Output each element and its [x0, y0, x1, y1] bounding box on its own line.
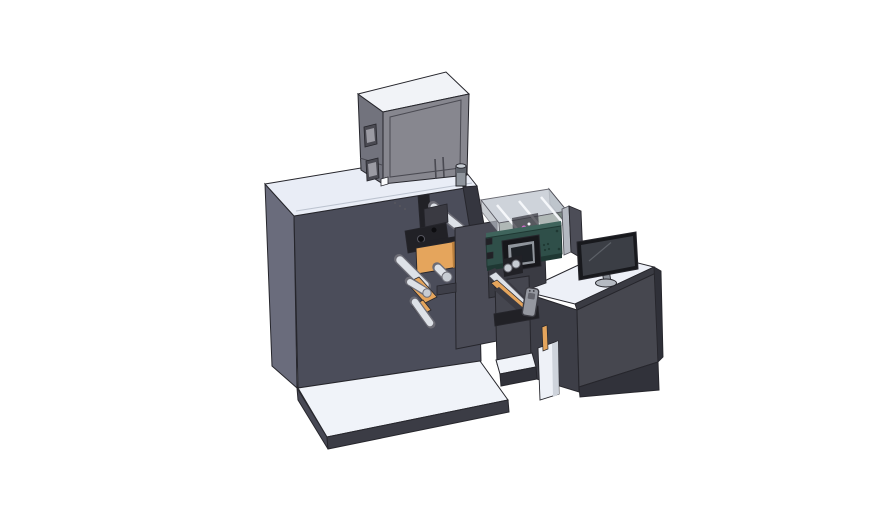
screw-dot	[404, 208, 406, 210]
enclosure-connector-upper	[486, 238, 492, 245]
roller-4	[438, 268, 444, 274]
hmi-button	[544, 249, 546, 251]
machine-cabinet	[265, 153, 481, 388]
hmi-button	[543, 244, 545, 246]
remote-screen	[528, 293, 536, 300]
enclosure-screw	[556, 230, 559, 233]
screw-dot	[399, 205, 401, 207]
box-handle-upper-inner	[366, 128, 375, 143]
hmi-button	[548, 248, 550, 250]
enclosure-screw	[558, 248, 561, 251]
cylinder-top	[456, 164, 466, 168]
hmi-button	[547, 243, 549, 245]
mechanism-pin	[432, 228, 437, 233]
box-vent-slot	[443, 157, 444, 177]
footwell-orange-sliver	[542, 325, 548, 351]
desk-footwell-shade	[552, 341, 559, 397]
box-handle-lower-inner	[368, 162, 377, 177]
screw-dot	[394, 202, 396, 204]
box-corner-tag	[381, 177, 388, 186]
top-cylinder	[456, 164, 466, 186]
cover-inner-dot	[528, 223, 531, 226]
machine-render	[0, 0, 888, 522]
roller-4-end-cap	[442, 272, 452, 282]
roller-2-end-cap	[423, 289, 431, 297]
cad-render-viewport	[0, 0, 888, 522]
monitor-base	[596, 279, 617, 287]
box-vent-slot	[435, 159, 436, 179]
pedestal-roller-end	[504, 264, 512, 272]
enclosure-connector-lower	[487, 252, 493, 259]
pedestal-roller-end	[512, 260, 520, 268]
mechanism-hub	[418, 236, 425, 243]
